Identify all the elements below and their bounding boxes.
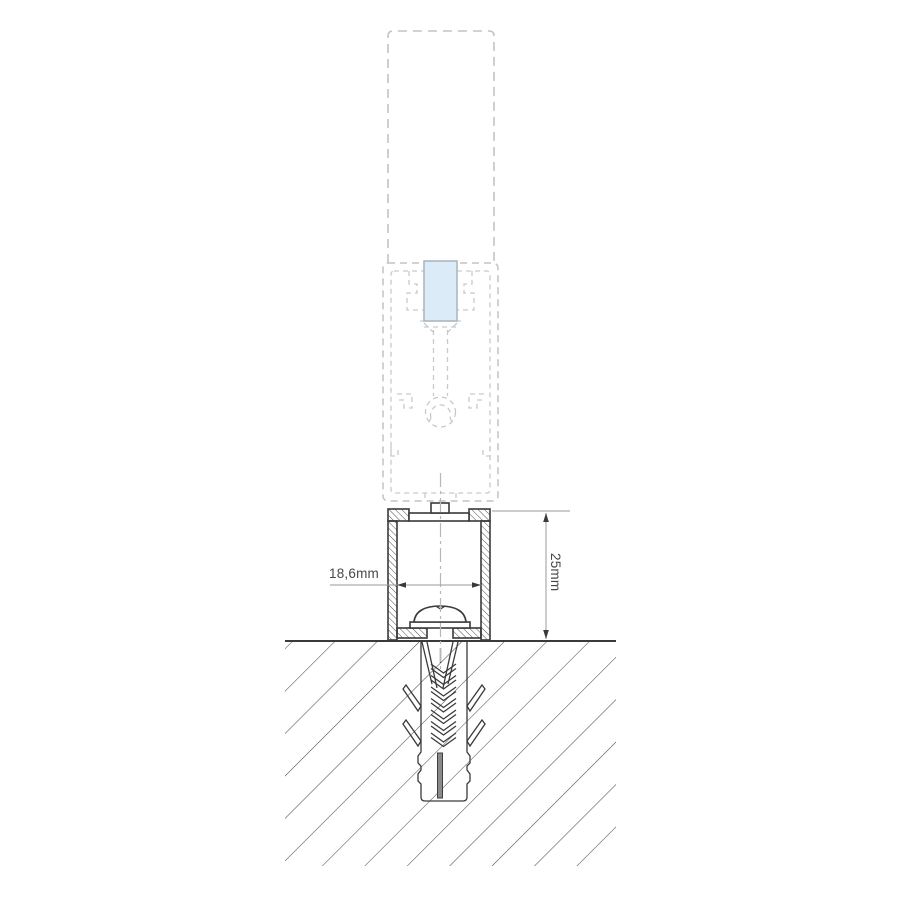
width-dimension-label: 18,6mm	[329, 566, 379, 581]
height-dimension-label: 25mm	[548, 553, 563, 591]
diagram-canvas: 18,6mm 25mm	[0, 0, 900, 900]
technical-drawing	[0, 0, 900, 900]
anchor-split-slot	[438, 753, 443, 798]
glass-panel-dashed-outline	[388, 31, 494, 263]
glass-insert	[424, 261, 457, 321]
